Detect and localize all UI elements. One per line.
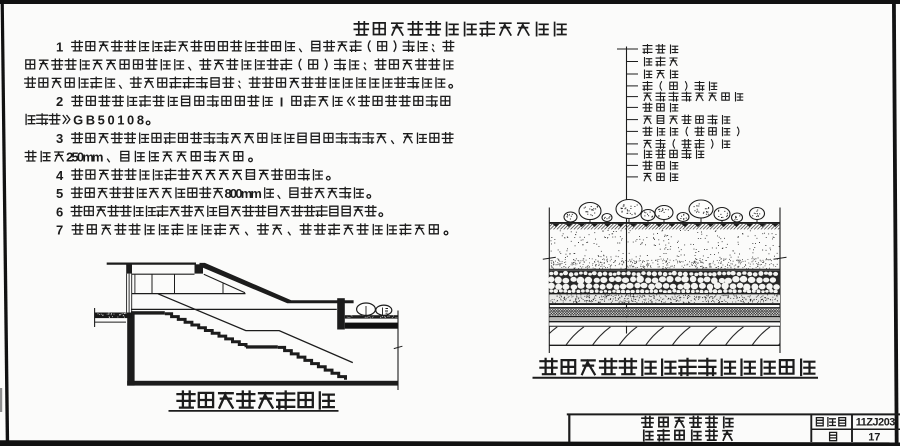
svg-text:5: 5 xyxy=(56,186,63,201)
svg-text:6: 6 xyxy=(56,204,63,219)
svg-text:17: 17 xyxy=(868,432,880,444)
svg-text:800mm: 800mm xyxy=(225,186,262,201)
svg-text:4: 4 xyxy=(56,168,64,183)
svg-text:11ZJ203: 11ZJ203 xyxy=(856,417,896,429)
svg-text:I: I xyxy=(280,94,284,109)
svg-text:2: 2 xyxy=(56,94,63,109)
svg-text:1: 1 xyxy=(56,39,63,54)
svg-text:7: 7 xyxy=(56,223,63,238)
svg-text:250mm: 250mm xyxy=(66,150,103,165)
svg-text:3: 3 xyxy=(56,131,63,146)
